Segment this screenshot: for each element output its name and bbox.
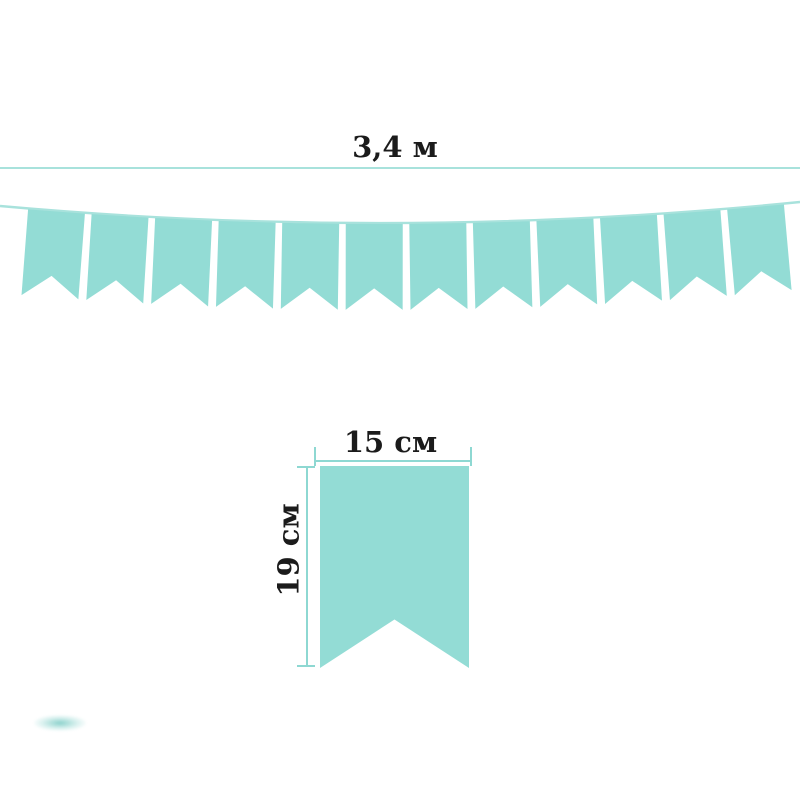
pennant-flag [536,218,597,306]
bunting-garland [0,190,800,325]
corner-smudge [34,715,86,731]
pennant-flag [281,223,339,310]
width-measure-line [315,460,472,462]
pennant-flag [216,221,276,309]
pennant-flag [86,214,148,303]
height-measure-tick-top [297,466,315,468]
pennant-flag [600,215,662,304]
pennant-flag [473,221,532,309]
pennant-flag [22,209,85,299]
pennant-flag [151,218,212,307]
pennant-flag [346,224,403,310]
total-length-line [0,167,800,169]
height-measure-tick-bottom [297,665,315,667]
pennant-flag [727,204,791,295]
total-length-label: 3,4 м [0,133,790,162]
single-flag [320,466,469,668]
flag-width-label: 15 см [308,428,473,457]
pennant-flag [664,210,727,300]
flag-height-label: 19 см [275,503,304,596]
pennant-flag [409,223,467,310]
product-dimension-diagram: 3,4 м 15 см 19 см [0,0,800,800]
height-measure-line [306,467,308,667]
